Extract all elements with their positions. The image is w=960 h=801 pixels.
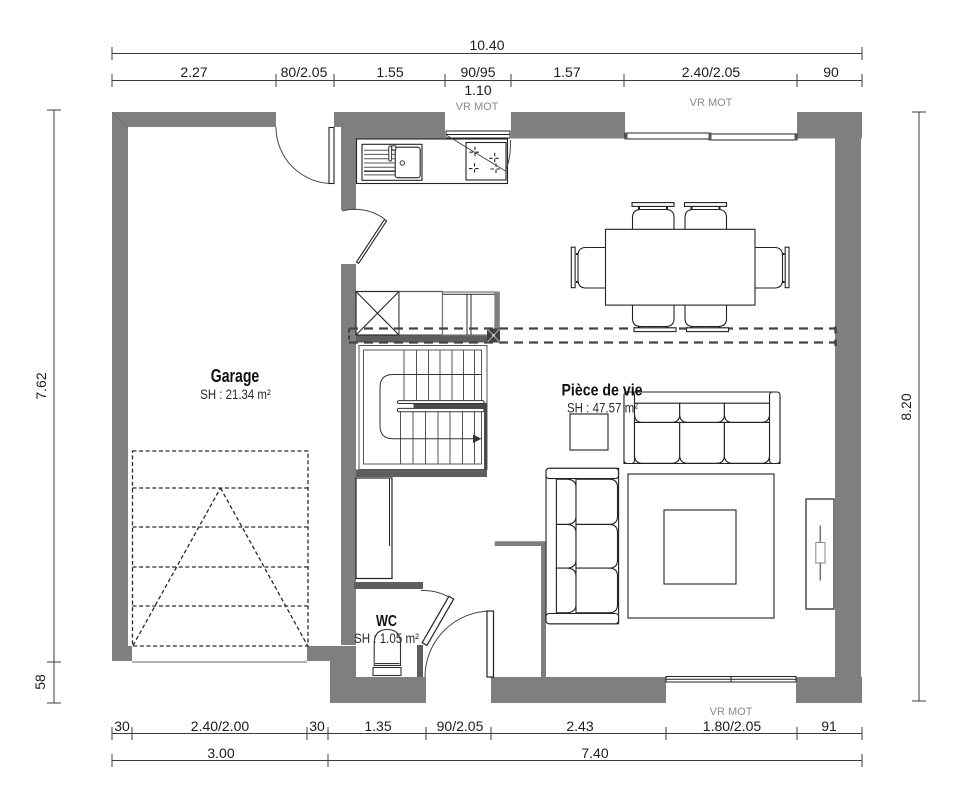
svg-text:7.62: 7.62: [33, 372, 49, 399]
svg-text:90/2.05: 90/2.05: [437, 718, 484, 734]
svg-text:Pièce de vie: Pièce de vie: [562, 382, 643, 400]
svg-text:2.43: 2.43: [566, 718, 593, 734]
svg-text:2.27: 2.27: [180, 64, 207, 80]
svg-text:Garage: Garage: [211, 366, 260, 386]
svg-text:91: 91: [821, 718, 837, 734]
svg-text:58: 58: [32, 674, 48, 690]
svg-text:1.80/2.05: 1.80/2.05: [703, 718, 762, 734]
svg-text:WC: WC: [376, 613, 397, 630]
svg-text:1.55: 1.55: [376, 64, 403, 80]
svg-text:SH : 21.34 m²: SH : 21.34 m²: [200, 387, 271, 402]
svg-text:2.40/2.00: 2.40/2.00: [191, 718, 250, 734]
svg-text:1.10: 1.10: [464, 82, 491, 98]
svg-text:7.40: 7.40: [581, 745, 608, 761]
svg-text:90/95: 90/95: [460, 64, 495, 80]
svg-text:1.57: 1.57: [553, 64, 580, 80]
svg-text:1.35: 1.35: [364, 718, 391, 734]
svg-text:SH : 47.57 m²: SH : 47.57 m²: [567, 401, 638, 416]
svg-text:2.40/2.05: 2.40/2.05: [682, 64, 741, 80]
svg-text:80/2.05: 80/2.05: [281, 64, 328, 80]
svg-text:3.00: 3.00: [207, 745, 234, 761]
svg-text:30: 30: [114, 718, 130, 734]
svg-text:VR MOT: VR MOT: [710, 706, 753, 718]
svg-text:VR MOT: VR MOT: [456, 101, 499, 113]
svg-text:8.20: 8.20: [898, 393, 914, 420]
svg-text:90: 90: [823, 64, 839, 80]
svg-text:30: 30: [309, 718, 325, 734]
svg-text:SH : 1.05 m²: SH : 1.05 m²: [354, 631, 419, 646]
svg-text:10.40: 10.40: [469, 37, 504, 53]
svg-text:VR MOT: VR MOT: [690, 97, 733, 109]
